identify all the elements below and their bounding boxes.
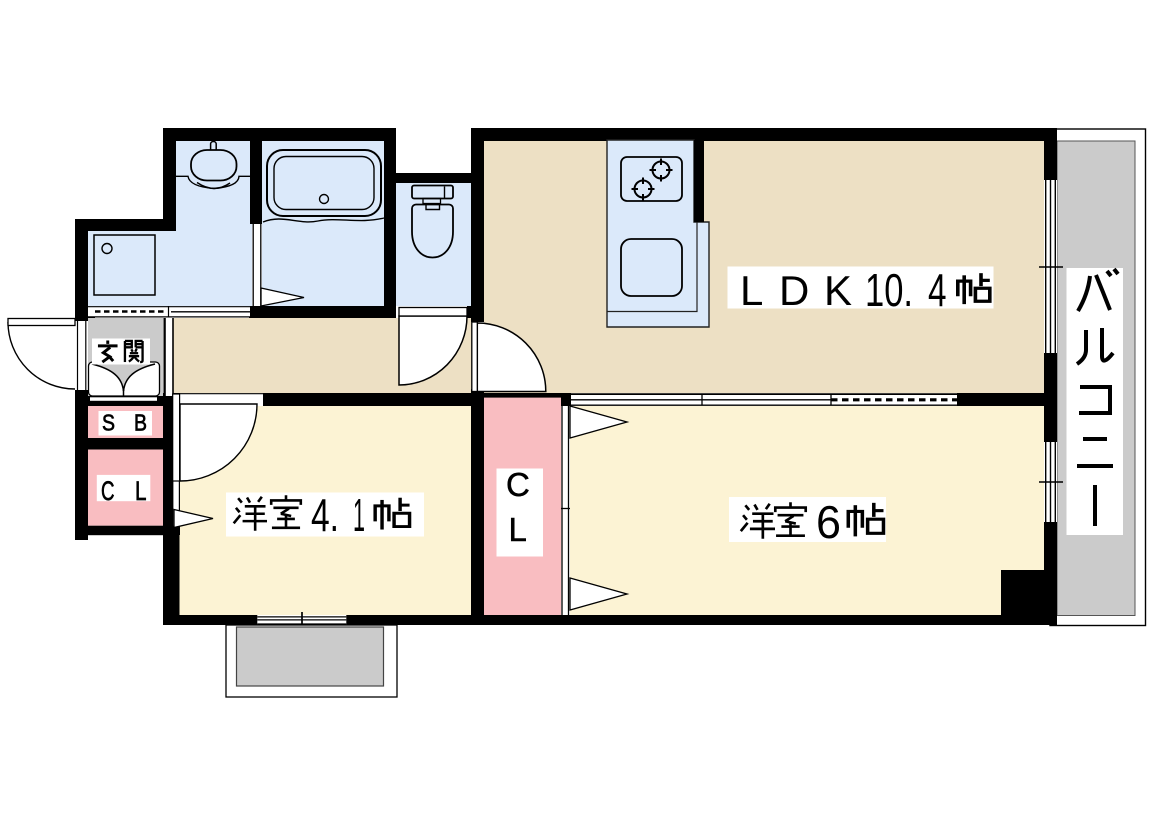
svg-text:S: S [102,410,115,436]
svg-text:C: C [506,466,530,503]
svg-text:C: C [101,476,115,506]
svg-text:4: 4 [928,264,947,316]
svg-text:L: L [509,511,527,548]
svg-text:B: B [134,410,147,436]
svg-text:L: L [740,267,763,314]
svg-text:4.: 4. [311,489,339,541]
svg-text:1: 1 [353,489,365,541]
svg-text:K: K [824,267,852,314]
svg-text:D: D [779,267,809,314]
svg-text:10.: 10. [865,264,913,316]
svg-text:6: 6 [816,496,841,548]
svg-text:L: L [135,476,147,506]
